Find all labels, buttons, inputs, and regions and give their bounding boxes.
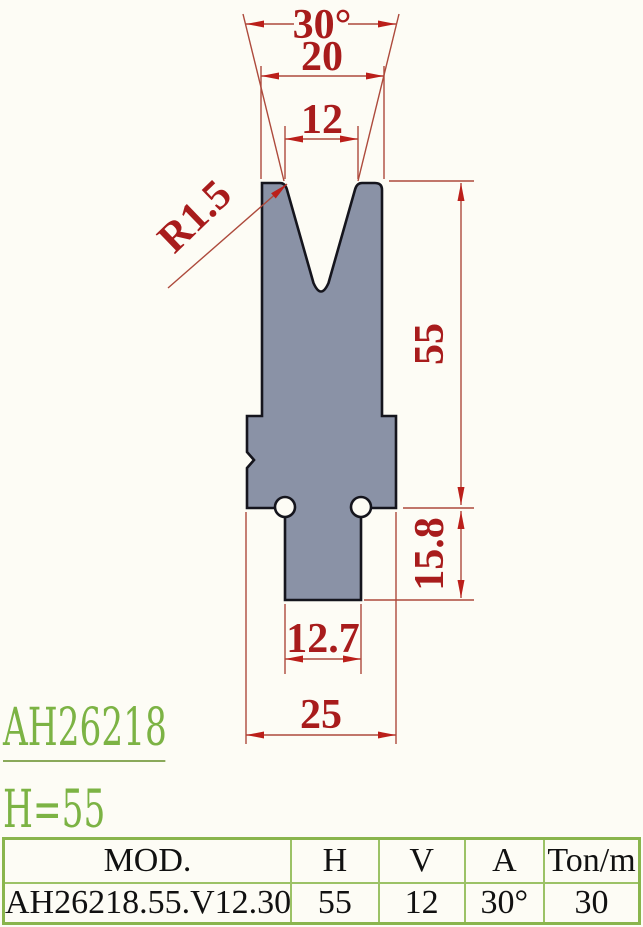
header-h: H [291,839,379,883]
header-mod: MOD. [4,839,291,883]
v-opening-dimension-label: 12 [301,97,343,143]
tang-width-dimension-label: 12.7 [286,616,360,662]
technical-drawing-page: 30° 20 12 R1.5 [0,0,643,927]
spec-table: MOD. H V A Ton/m AH26218.55.V12.30 55 12… [2,837,641,925]
header-a: A [465,839,545,883]
part-model-title: AH26218 [3,700,165,762]
dimension-angle-30: 30° [243,2,399,181]
base-width-dimension-label: 25 [300,692,342,738]
cell-h: 55 [291,883,379,924]
spec-table-data-row: AH26218.55.V12.30 55 12 30° 30 [4,883,640,924]
header-v: V [379,839,465,883]
body-height-dimension-label: 55 [407,323,453,365]
cell-v: 12 [379,883,465,924]
cell-a: 30° [465,883,545,924]
left-relief-hole [275,497,295,517]
dimension-shoulder-height-15-8: 15.8 [364,511,474,600]
right-relief-hole [351,497,371,517]
shoulder-height-dimension-label: 15.8 [407,517,453,591]
dimension-tang-width-12-7: 12.7 [285,604,361,674]
dimension-v-opening-12: 12 [285,97,358,179]
dimension-body-height-55: 55 [389,181,474,508]
cell-tonm: 30 [544,883,639,924]
top-width-dimension-label: 20 [301,34,343,80]
die-profile-outline [247,183,396,600]
spec-table-header-row: MOD. H V A Ton/m [4,839,640,883]
tip-radius-label: R1.5 [149,171,241,262]
header-tonm: Ton/m [544,839,639,883]
cell-mod: AH26218.55.V12.30 [4,883,291,924]
die-body-shape [247,183,396,600]
part-height-label: H=55 [3,782,105,838]
